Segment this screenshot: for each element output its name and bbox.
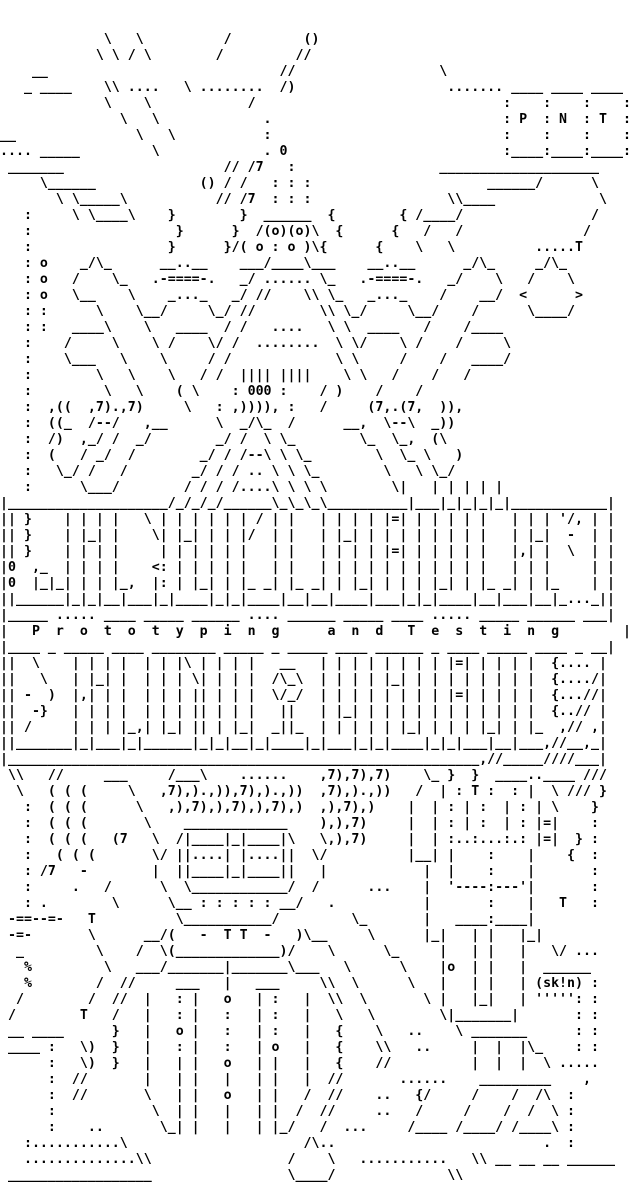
ascii-art-canvas: \ \ / () \ \ / \ / // __ // \ _ ____ \\ … <box>0 0 640 1184</box>
ascii-artwork: \ \ / () \ \ / \ / // __ // \ _ ____ \\ … <box>0 0 640 1184</box>
